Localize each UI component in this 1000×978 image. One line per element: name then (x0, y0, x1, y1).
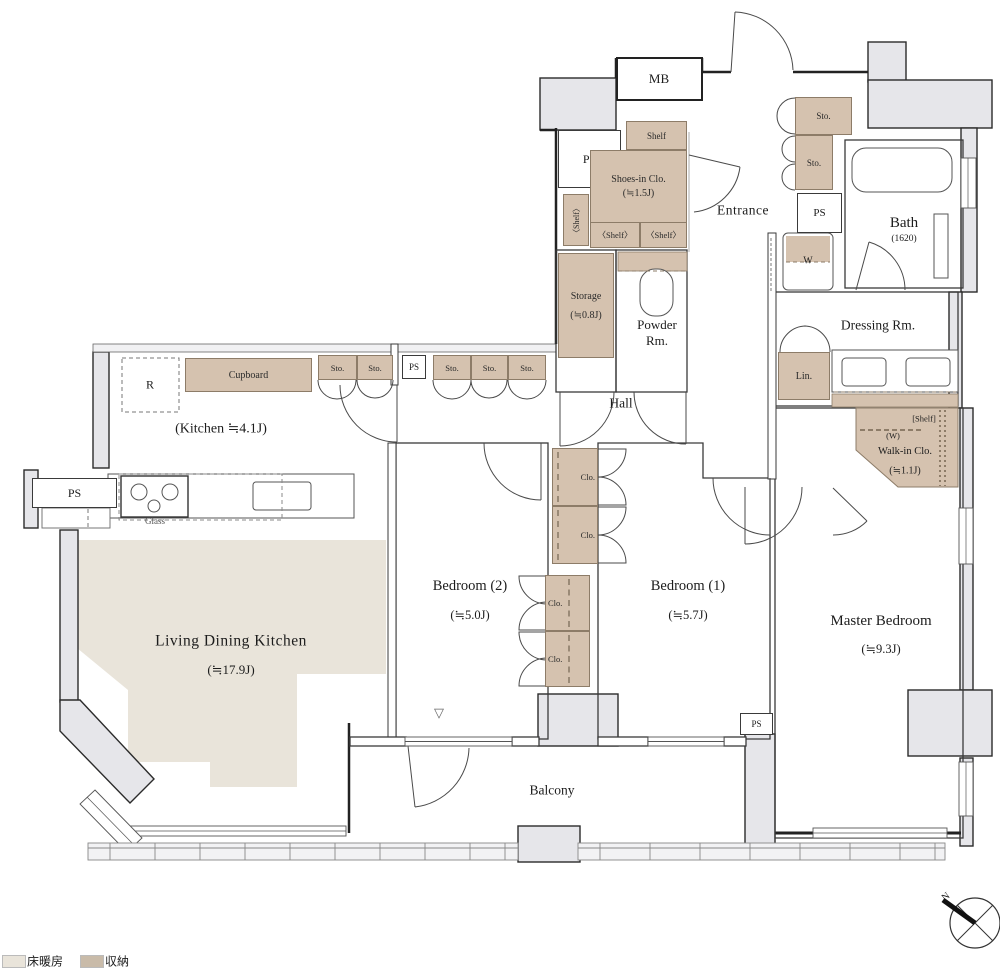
ps-box-5: PS (740, 713, 773, 735)
linen-box: Lin. (778, 352, 830, 400)
sto-label: Sto. (807, 158, 821, 168)
ldk-bedroom2-wall (388, 443, 396, 739)
toilet (640, 269, 673, 316)
clo-label: Clo. (581, 530, 595, 540)
shelf-label: Shelf (647, 131, 666, 141)
ldk-size: (≒17.9J) (207, 663, 254, 677)
powder-label-2: Rm. (646, 334, 668, 348)
entrance-storage-1: Sto. (795, 97, 852, 135)
kitchen-storage-doors (318, 380, 546, 399)
fridge-label: R (146, 378, 154, 391)
bedroom1-door (713, 478, 770, 535)
shoes-shelf-bottom-2: 〈Shelf〉 (640, 222, 687, 248)
shoes-closet-name: Shoes-in Clo. (611, 174, 665, 185)
burner-3 (148, 500, 160, 512)
closet-doors-west (519, 576, 547, 686)
burner-2 (162, 484, 178, 500)
washer-label: W (803, 256, 812, 267)
entrance-label: Entrance (717, 204, 769, 219)
clo-label: Clo. (548, 654, 562, 664)
shelf-bracket-label: 〈Shelf〉 (571, 204, 582, 237)
storage-size: (≒0.8J) (570, 310, 601, 321)
ps-box-2: PS (797, 193, 842, 233)
shoes-shelf-bottom-1: 〈Shelf〉 (590, 222, 640, 248)
entrance-door (731, 12, 793, 72)
balcony-wall-stub-1 (350, 737, 406, 746)
powder-label-1: Powder (637, 318, 677, 332)
storage-door (560, 392, 614, 446)
clo-label: Clo. (581, 472, 595, 482)
kitchen-label: (Kitchen ≒4.1J) (175, 421, 267, 436)
sto-label: Sto. (520, 363, 533, 373)
ps-label: PS (409, 362, 419, 372)
sink-2 (906, 358, 950, 386)
bathtub (852, 148, 952, 192)
ps-box-3: PS (402, 355, 426, 379)
balcony-wall-stub-2 (598, 737, 648, 746)
clo-label: Clo. (548, 598, 562, 608)
closet-pole (557, 510, 559, 560)
shelf-bracket-label: 〈Shelf〉 (598, 229, 633, 241)
balcony-wall-stub-3 (724, 737, 746, 746)
burner-1 (131, 484, 147, 500)
shoes-shelf-top: Shelf (626, 121, 687, 150)
walkin-name: Walk-in Clo. (878, 446, 932, 458)
hall-east-wall (768, 233, 776, 479)
walkin-w-label: (W) (886, 431, 900, 440)
compass (943, 898, 1000, 948)
cupboard-label: Cupboard (229, 370, 268, 381)
bedroom2-door (484, 443, 541, 500)
meter-box-label: MB (649, 72, 669, 86)
bedroom1-size: (≒5.7J) (668, 609, 707, 623)
walkin-shelf-label: [Shelf] (912, 414, 936, 423)
bath-door (856, 242, 905, 290)
balcony-step-door (408, 746, 469, 807)
bedroom1-name: Bedroom (1) (651, 579, 726, 595)
storage-name: Storage (571, 291, 602, 302)
master-name: Master Bedroom (830, 613, 931, 630)
closet-pole (568, 635, 570, 683)
lin-label: Lin. (796, 371, 812, 382)
master-door (745, 487, 802, 544)
bedroom2-size: (≒5.0J) (450, 609, 489, 623)
closet-2: Clo. (552, 506, 598, 564)
shoes-shelf-left: 〈Shelf〉 (563, 194, 589, 246)
shoes-closet-size: (≒1.5J) (623, 188, 654, 199)
legend-floor-heating-label: 床暖房 (27, 955, 63, 968)
legend-storage-label: 収納 (105, 955, 129, 968)
bath-label: Bath (890, 215, 918, 232)
walkin-door (833, 488, 867, 535)
ps-label: PS (68, 486, 81, 501)
floorplan-geometry (0, 0, 1000, 978)
ps-box-4: PS (32, 478, 117, 508)
closet-3: Clo. (545, 575, 590, 631)
kitchen-storage-1: Sto. (318, 355, 357, 380)
ps-label: PS (813, 207, 825, 219)
closet-1: Clo. (552, 448, 598, 506)
sto-label: Sto. (816, 111, 830, 121)
ldk-name: Living Dining Kitchen (155, 632, 307, 649)
closet-pole (557, 452, 559, 502)
shelf-bracket-label: 〈Shelf〉 (646, 229, 681, 241)
hall-label: Hall (609, 397, 632, 412)
kitchen-hall-door (340, 385, 397, 442)
sto-label: Sto. (445, 363, 458, 373)
sto-label: Sto. (331, 363, 344, 373)
balcony-label: Balcony (530, 784, 575, 799)
bedroom2-name: Bedroom (2) (433, 579, 508, 595)
linen-doors (780, 326, 830, 352)
closet-4: Clo. (545, 631, 590, 687)
master-size: (≒9.3J) (861, 643, 900, 657)
entrance-storage-2: Sto. (795, 135, 833, 190)
shelf-left-box (42, 508, 110, 528)
legend-storage-swatch (80, 955, 104, 968)
sink-1 (842, 358, 886, 386)
powder-door (634, 392, 686, 444)
dressing-label: Dressing Rm. (841, 319, 915, 334)
balcony-rail (88, 843, 945, 860)
sto-label: Sto. (368, 363, 381, 373)
kitchen-storage-2: Sto. (357, 355, 393, 380)
balcony-wall-stub-4 (512, 737, 539, 746)
kitchen-storage-4: Sto. (471, 355, 508, 380)
storage-room-box: Storage (≒0.8J) (558, 253, 614, 358)
cupboard-box: Cupboard (185, 358, 312, 392)
step-marker: ▽ (434, 706, 444, 720)
closet-pole (568, 579, 570, 627)
bath-towel-bar (934, 214, 948, 278)
entrance-storage-doors (777, 98, 795, 190)
kitchen-storage-5: Sto. (508, 355, 546, 380)
legend-floor-heating-swatch (2, 955, 26, 968)
sto-label: Sto. (483, 363, 496, 373)
glass-label: Glass (145, 517, 165, 527)
bath-size: (1620) (891, 234, 916, 244)
shoes-in-closet: Shoes-in Clo. (≒1.5J) (590, 150, 687, 223)
floor-plan: PS Shelf Shoes-in Clo. (≒1.5J) 〈Shelf〉 〈… (0, 0, 1000, 978)
ps-label: PS (751, 719, 761, 729)
walkin-size: (≒1.1J) (889, 466, 920, 477)
closet-doors-east (598, 449, 626, 563)
kitchen-storage-3: Sto. (433, 355, 471, 380)
kitchen-top-wall (93, 344, 556, 352)
